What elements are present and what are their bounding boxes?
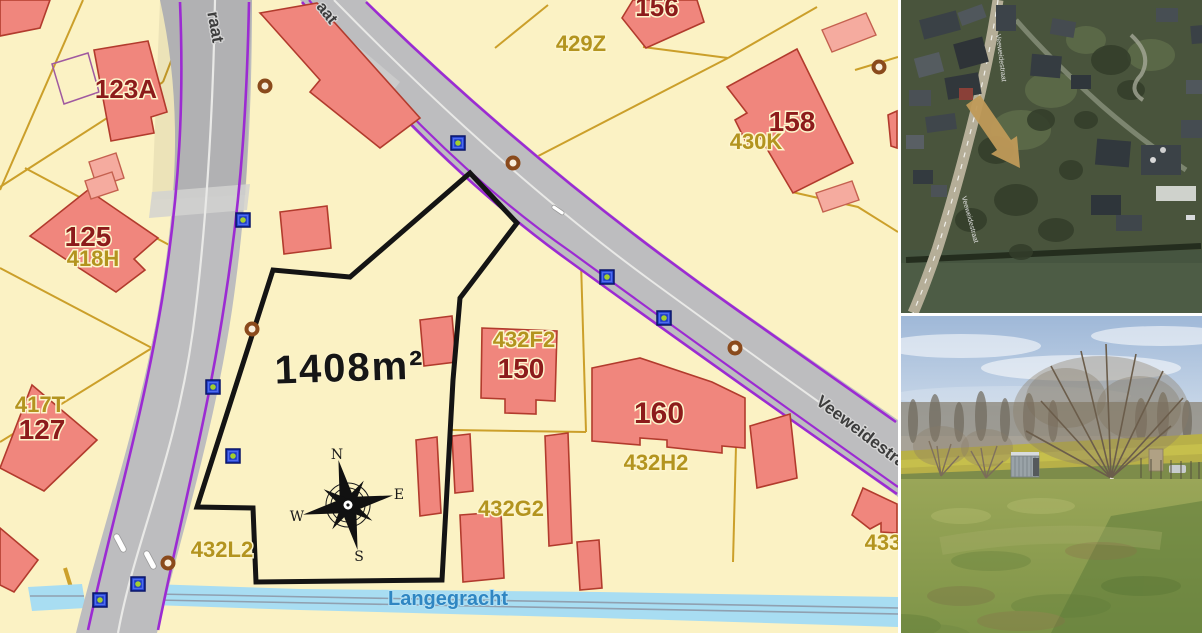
area-size-label: 1408m² (274, 343, 425, 392)
shed (1011, 452, 1039, 477)
house-number-123A: 123A (95, 74, 157, 104)
parcel-number-432G2: 432G2 (478, 496, 544, 521)
boundary-marker-brown (247, 324, 258, 335)
parcel-number-433I: 433I (865, 530, 898, 555)
cadastral-map: 123A125127150156158160418H417T432L2429Z4… (0, 0, 898, 633)
listing-image-collage: 123A125127150156158160418H417T432L2429Z4… (0, 0, 1202, 633)
ground-photo-svg (901, 316, 1202, 633)
survey-marker-blue (236, 213, 250, 227)
parcel-number-418H: 418H (67, 246, 120, 271)
survey-marker-blue (657, 311, 671, 325)
parcel-number-417T: 417T (15, 392, 66, 417)
red-roof-house (959, 88, 973, 100)
parcel-number-432H2: 432H2 (624, 450, 689, 475)
compass-letter-S: S (354, 549, 364, 565)
boundary-marker-brown (163, 558, 174, 569)
house-number-150: 150 (498, 353, 545, 384)
boundary-marker-brown (874, 62, 885, 73)
house-number-160: 160 (634, 397, 684, 430)
compass-letter-N: N (331, 447, 343, 463)
cadastral-map-svg: 123A125127150156158160418H417T432L2429Z4… (0, 0, 898, 633)
aerial-photo-svg: Veeweidestraat Veeweidestraat (901, 0, 1202, 313)
boundary-marker-brown (730, 343, 741, 354)
house-number-156: 156 (635, 0, 678, 22)
boundary-marker-brown (508, 158, 519, 169)
ground-photo (901, 316, 1202, 633)
boundary-marker-brown (260, 81, 271, 92)
water-name-label: Langegracht (388, 588, 508, 610)
survey-marker-blue (206, 380, 220, 394)
survey-marker-blue (226, 449, 240, 463)
compass-letter-E: E (394, 487, 404, 503)
house-number-127: 127 (19, 414, 66, 445)
survey-marker-blue (600, 270, 614, 284)
parcel-number-429Z: 429Z (556, 31, 606, 56)
survey-marker-blue (131, 577, 145, 591)
parcel-number-432F2: 432F2 (493, 327, 555, 352)
survey-marker-blue (93, 593, 107, 607)
aerial-photo: Veeweidestraat Veeweidestraat (901, 0, 1202, 313)
compass-letter-W: W (290, 509, 305, 525)
survey-marker-blue (451, 136, 465, 150)
parcel-number-432L2: 432L2 (191, 537, 253, 562)
parcel-number-430K: 430K (730, 129, 783, 154)
